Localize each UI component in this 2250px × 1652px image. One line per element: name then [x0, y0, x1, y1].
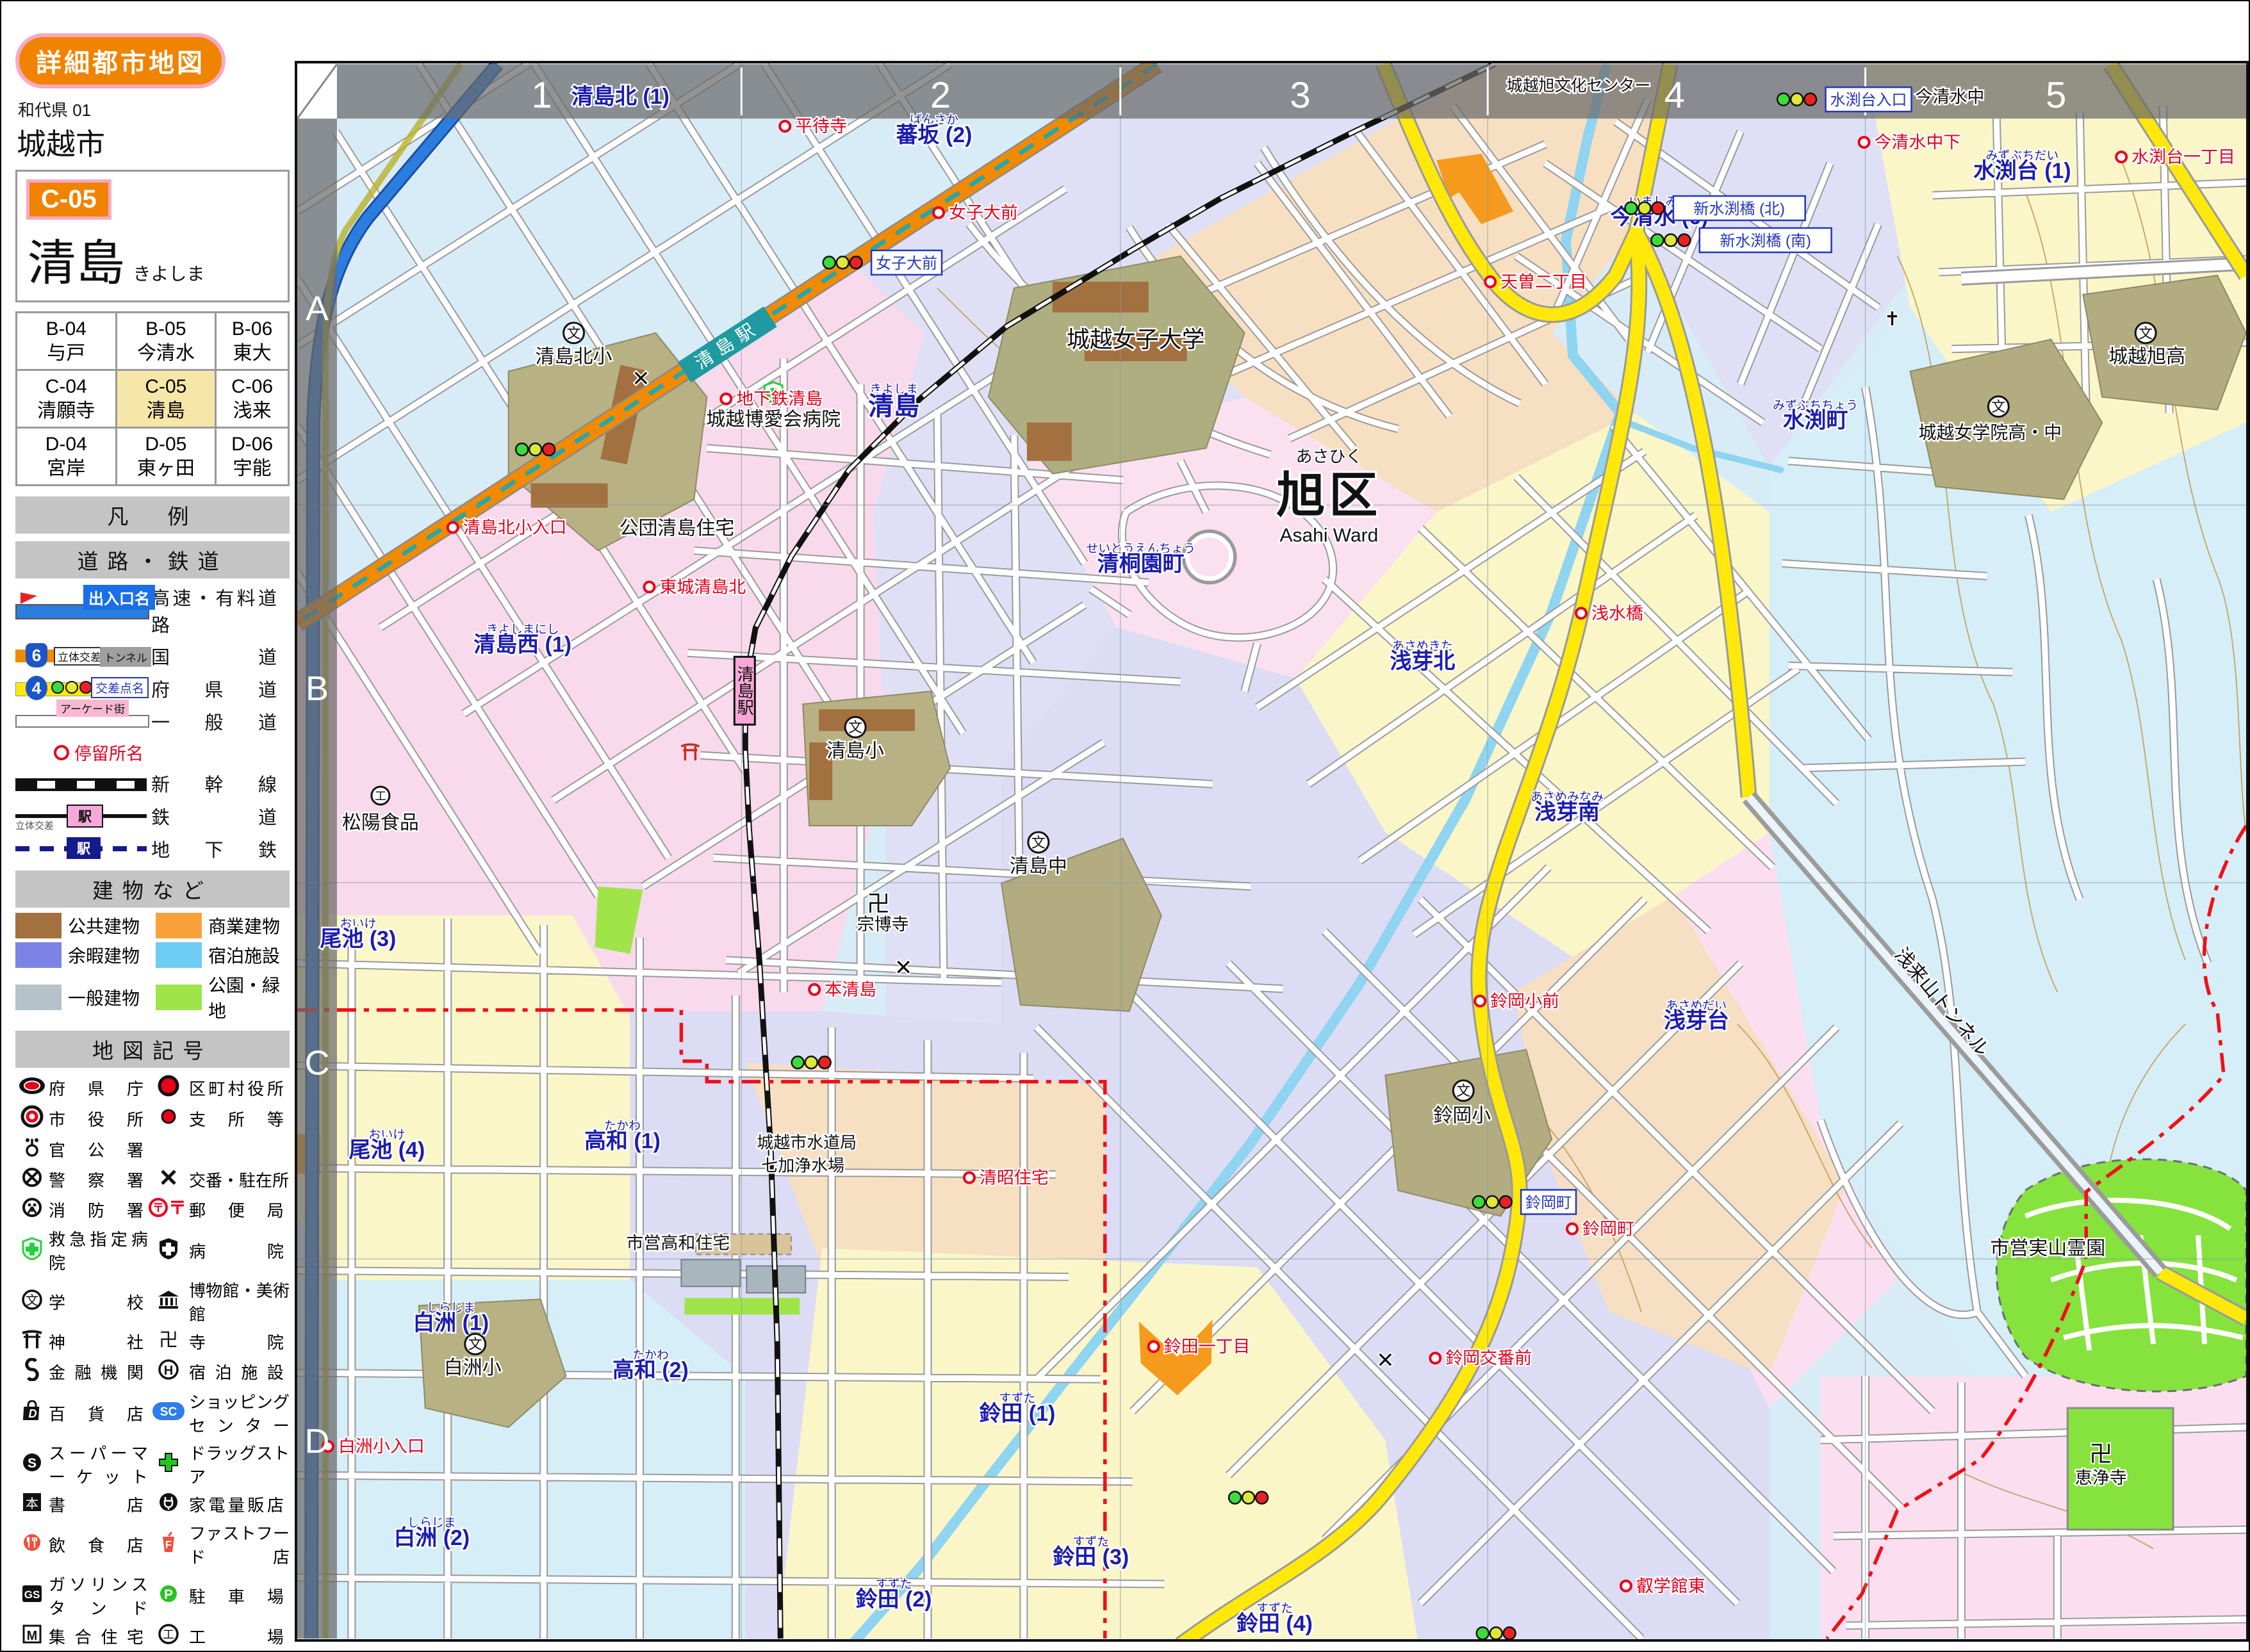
traffic-light-icon [1804, 94, 1816, 106]
symbol-label: 消防署 [49, 1198, 144, 1222]
area-label: 鈴田 (3) [1053, 1544, 1129, 1569]
crossing-name-label: 水渕台入口 [1830, 92, 1907, 109]
row-ref: A [306, 290, 329, 328]
row-ref: C [304, 1044, 329, 1083]
area-label: 水渕台 (1) [1973, 159, 2071, 183]
ordinary-road-label: 一般道 [151, 708, 277, 735]
subway-sample: 駅 [15, 835, 151, 863]
area-label: 白洲 (2) [393, 1526, 470, 1550]
ward-label-en: Asahi Ward [1280, 525, 1379, 546]
traffic-light-icon [1473, 1196, 1485, 1208]
宿泊施設-icon: H [148, 1356, 189, 1387]
sheet-code-badge: C-05 [26, 179, 111, 220]
area-label: 白洲 (1) [413, 1311, 489, 1335]
prefecture-label: 和代県 01 [18, 97, 290, 121]
svg-text:〒: 〒 [152, 1202, 164, 1214]
tile-B-04[interactable]: B-04与戸 [17, 313, 117, 370]
map-series-badge: 詳細都市地図 [15, 33, 226, 88]
traffic-light-icon [1490, 1627, 1502, 1639]
church-icon: ✝ [1884, 309, 1900, 330]
area-label: 浅芽北 [1390, 649, 1455, 673]
府県庁-icon [15, 1073, 49, 1103]
building-legend-grid: 公共建物 商業建物 余暇建物 宿泊施設 一般建物 公園・緑地 [15, 913, 290, 1023]
rail-label: 鉄道 [151, 803, 277, 830]
消防署-icon [15, 1195, 49, 1225]
bus-stop-icon [933, 208, 944, 218]
ward-label: 旭区 [1277, 469, 1382, 523]
subway-label: 地下鉄 [151, 835, 277, 862]
官公署-icon [15, 1134, 49, 1165]
家電量販店-icon [148, 1490, 189, 1519]
area-label: 尾池 (3) [320, 927, 396, 951]
symbol-label: 寺院 [189, 1330, 284, 1353]
金融機関-icon [15, 1356, 49, 1387]
博物館・美術館-icon [148, 1276, 189, 1327]
traffic-light-icon [1477, 1627, 1489, 1639]
legend-buildings-title: 建物など [15, 871, 290, 908]
map-symbol-legend: 府県庁区町村役所市役所支所等官公署警察署交番・駐在所消防署〒〒郵便局救急指定病院… [15, 1073, 290, 1651]
traffic-light-icon [1664, 234, 1677, 246]
place-label: 城越旭高 [2108, 347, 2185, 368]
ward-furigana: あさひく [1295, 447, 1362, 466]
svg-text:文: 文 [468, 1336, 482, 1352]
adjacent-sheet-grid: B-04与戸 B-05今清水 B-06東大 C-04清願寺 C-05清島 C-0… [15, 311, 290, 486]
symbol-label: 神社 [49, 1330, 144, 1353]
svg-text:D: D [29, 1407, 37, 1420]
svg-text:文: 文 [848, 719, 862, 735]
symbol-label: 救急指定病院 [49, 1227, 148, 1274]
area-label: 尾池 (4) [349, 1138, 425, 1163]
subway-station-box: 駅 [67, 837, 101, 859]
sidebar: 詳細都市地図 和代県 01 城越市 C-05 清島 きよしま B-04与戸 B-… [15, 33, 290, 1652]
koban-icon: ✕ [1376, 1348, 1394, 1373]
bus-stop-icon [809, 985, 819, 995]
救急指定病院-icon [15, 1225, 49, 1276]
shinkansen-sample [15, 769, 151, 797]
svg-text:S: S [28, 1456, 37, 1471]
神社-icon [15, 1327, 49, 1356]
svg-text:文: 文 [1991, 399, 2005, 415]
area-label: 蕃坂 (2) [896, 123, 973, 147]
svg-text:M: M [27, 1629, 38, 1643]
place-label: 城越市水道局 [757, 1133, 857, 1152]
crossing-name-label: 新水渕橋 (北) [1694, 200, 1785, 218]
expressway-label: 高速・有料道路 [151, 584, 277, 637]
bus-stop-label: 鈴岡交番前 [1445, 1348, 1532, 1368]
area-label: 浅芽南 [1534, 800, 1600, 824]
column-ref: 5 [2046, 75, 2066, 116]
building-leisure: 余暇建物 [15, 942, 149, 968]
crossing-name-box: 交差点名 [91, 677, 149, 698]
svg-text:SC: SC [160, 1405, 177, 1419]
svg-text:F: F [165, 1539, 172, 1551]
tile-B-06[interactable]: B-06東大 [216, 313, 289, 370]
bus-stop-label: 浅水橋 [1591, 603, 1643, 623]
bus-stop-icon [1485, 277, 1495, 287]
row-ref: B [306, 669, 329, 708]
place-label: 城越女子大学 [1067, 326, 1205, 352]
traffic-light-icon [1500, 1196, 1512, 1208]
traffic-light-icon [51, 681, 92, 694]
svg-text:文: 文 [2139, 325, 2153, 341]
bus-stop-icon [1430, 1353, 1440, 1363]
route-shield-icon: 6 [26, 643, 47, 667]
entry-arrow-icon [21, 590, 37, 604]
area-label: 清島西 (1) [473, 632, 571, 657]
svg-text:文: 文 [1031, 835, 1046, 851]
区町村役所-icon [148, 1073, 189, 1103]
area-label: 鈴田 (4) [1236, 1611, 1313, 1636]
symbol-label: 警察署 [49, 1168, 144, 1191]
column-ref: 2 [930, 75, 951, 116]
national-road-sample: 6 立体交差 トンネル [15, 642, 151, 670]
bus-stop-label: 鈴岡町 [1582, 1219, 1634, 1238]
traffic-light-icon [1777, 94, 1789, 106]
tile-D-05[interactable]: D-05東ヶ田 [116, 428, 216, 486]
rail-station-name: 清島駅 [735, 666, 754, 716]
svg-text:〒: 〒 [168, 1198, 186, 1218]
bus-stop-label: 本清島 [825, 980, 876, 999]
bus-stop-icon [1621, 1581, 1631, 1591]
traffic-light-icon [1638, 202, 1650, 214]
svg-text:H: H [164, 1364, 173, 1378]
land-use-zones [297, 64, 2246, 1639]
tile-C-05-current[interactable]: C-05清島 [116, 370, 216, 428]
交番・駐在所-icon [148, 1165, 189, 1195]
symbol-label: 市役所 [49, 1107, 144, 1131]
traffic-light-icon [805, 1056, 817, 1068]
symbol-label: 家電量販店 [189, 1493, 284, 1516]
shinkansen-label: 新幹線 [151, 770, 277, 797]
public-building-swatch [15, 913, 62, 938]
symbol-label: 百貨店 [49, 1402, 144, 1425]
area-label: 高和 (1) [584, 1129, 661, 1154]
symbol-label: 博物館・美術館 [189, 1278, 290, 1325]
legend-shinkansen-row: 新幹線 [15, 769, 290, 797]
legend-title: 凡 例 [15, 496, 290, 534]
pref-route-shield-icon: 4 [26, 676, 47, 700]
city-label: 城越市 [17, 121, 290, 163]
building-general: 一般建物 [15, 972, 149, 1023]
bus-stop-label: 東城清島北 [659, 577, 746, 596]
svg-text:文: 文 [567, 325, 581, 341]
place-label: 恵浄寺 [2075, 1468, 2127, 1487]
prefectural-road-label: 府県道 [151, 675, 277, 702]
symbol-label: 学校 [49, 1290, 144, 1314]
place-label: 清島北小 [536, 347, 612, 368]
traffic-light-icon [837, 256, 849, 268]
place-label: 城越博愛会病院 [706, 409, 841, 430]
temple-icon: 卍 [2089, 1441, 2112, 1467]
place-label: 鈴岡小 [1433, 1106, 1491, 1127]
expressway-sample: 出入口名 [15, 596, 151, 625]
traffic-light-icon [792, 1056, 804, 1068]
bus-stop-icon [780, 121, 790, 131]
警察署-icon [15, 1165, 49, 1195]
スーパーマーケット-icon: S [15, 1439, 49, 1490]
symbol-label: 駐車場 [189, 1584, 284, 1608]
traffic-light-icon [1652, 202, 1664, 214]
symbol-label: 官公署 [49, 1138, 144, 1161]
百貨店-icon: D [15, 1387, 49, 1439]
traffic-light-icon [1791, 94, 1803, 106]
area-label: 鈴田 (1) [979, 1401, 1055, 1426]
bus-stop-label: 清昭住宅 [980, 1168, 1049, 1187]
crossing-name-label: 新水渕橋 (南) [1720, 233, 1811, 250]
area-label: 浅芽台 [1664, 1009, 1729, 1033]
sheet-title-box: C-05 清島 きよしま [15, 170, 290, 302]
area-label: 高和 (2) [612, 1358, 689, 1382]
traffic-light-icon [1242, 1492, 1254, 1504]
legend-expressway-row: 出入口名 高速・有料道路 [15, 584, 290, 637]
traffic-light-icon [543, 443, 555, 455]
bus-stop-icon [1149, 1341, 1159, 1352]
crossing-name-label: 女子大前 [876, 255, 937, 272]
svg-text:GS: GS [24, 1589, 40, 1601]
place-label: 宗博寺 [857, 915, 909, 934]
bus-stop-label: 今清水中下 [1875, 133, 1961, 152]
area-label: 鈴田 (2) [856, 1587, 932, 1612]
place-label: 市営高和住宅 [627, 1233, 730, 1252]
symbol-label: 工場 [189, 1624, 284, 1648]
crossing-name-label: 鈴岡町 [1525, 1194, 1572, 1211]
traffic-light-icon [1486, 1196, 1499, 1208]
symbol-label: ガソリンスタンド [49, 1572, 148, 1619]
city-map-canvas[interactable]: 清島北 (1)ばんさか蕃坂 (2)いましみず今清水 (6)みずぶちだい水渕台 (… [297, 63, 2246, 1639]
detailed-city-map-page: 詳細都市地図 和代県 01 城越市 C-05 清島 きよしま B-04与戸 B-… [0, 0, 2250, 1652]
ガソリンスタンド-icon: GS [15, 1570, 49, 1621]
bus-stop-icon [721, 394, 731, 404]
map-area[interactable]: 清島北 (1)ばんさか蕃坂 (2)いましみず今清水 (6)みずぶちだい水渕台 (… [295, 61, 2249, 1642]
symbol-label: ドラッグストア [189, 1441, 290, 1488]
symbol-label: 支所等 [189, 1107, 284, 1131]
bus-stop-label: 叡学館東 [1636, 1576, 1705, 1596]
traffic-light-icon [823, 256, 835, 268]
集合住宅-icon: M [15, 1621, 49, 1651]
symbol-label: ファストフード店 [189, 1521, 290, 1568]
svg-text:卍: 卍 [159, 1330, 178, 1350]
place-label: 清島小 [826, 740, 884, 762]
svg-text:工: 工 [375, 790, 386, 803]
place-label: 市営実山霊園 [1990, 1238, 2105, 1259]
bus-stop-label: 鈴田一丁目 [1164, 1337, 1251, 1356]
building-park: 公園・緑地 [156, 972, 290, 1023]
national-road-label: 国道 [151, 642, 277, 669]
symbol-label: 集合住宅 [49, 1624, 144, 1648]
temple-icon: 卍 [867, 890, 890, 917]
bus-stop-icon [1859, 137, 1869, 147]
building-public: 公共建物 [15, 913, 149, 938]
symbol-label: 区町村役所 [189, 1076, 284, 1100]
bus-stop-icon [448, 523, 458, 533]
工場-icon: 工 [148, 1621, 189, 1651]
rail-station-box: 駅 [67, 805, 103, 828]
legend-symbols-title: 地図記号 [15, 1031, 290, 1068]
building-commercial: 商業建物 [156, 913, 290, 938]
ordinary-road-sample: アーケード街 [15, 707, 151, 735]
郵便局-icon: 〒〒 [148, 1195, 189, 1225]
svg-text:P: P [164, 1587, 173, 1602]
tunnel-label: トンネル [100, 647, 151, 667]
traffic-light-icon [529, 443, 541, 455]
area-label: 清島 [868, 393, 919, 421]
legend-rail-row: 駅 立体交差 鉄道 [15, 802, 290, 830]
traffic-light-icon [1678, 234, 1690, 246]
bus-stop-icon [2116, 152, 2126, 162]
bus-stop-icon [1475, 996, 1485, 1006]
rail-sample: 駅 立体交差 [15, 802, 151, 830]
symbol-label: ショッピングセンター [189, 1389, 290, 1437]
koban-icon: ✕ [632, 367, 650, 391]
place-label: 白洲小 [444, 1357, 502, 1378]
svg-text:本: 本 [26, 1496, 38, 1511]
bus-stop-label: 平待寺 [795, 117, 847, 136]
bus-stop-label: 鈴岡小前 [1490, 992, 1559, 1011]
legend-roads-title: 道路・鉄道 [15, 541, 290, 578]
ドラッグストア-icon [148, 1439, 189, 1490]
飲食店-icon [15, 1519, 49, 1570]
bus-stop-label: 水渕台一丁目 [2131, 147, 2235, 167]
symbol-label: 書店 [49, 1493, 144, 1516]
legend-prefectural-road-row: 4 交差点名 府県道 [15, 675, 290, 703]
寺院-icon: 卍 [148, 1327, 189, 1356]
prefectural-road-sample: 4 交差点名 [15, 675, 151, 703]
ショッピングセンター-icon: SC [148, 1387, 189, 1439]
bus-stop-icon [54, 745, 69, 760]
area-label: 清島北 (1) [571, 85, 669, 109]
place-label: 松陽食品 [342, 812, 419, 833]
bus-stop-icon [1567, 1223, 1577, 1234]
area-label: 水渕町 [1783, 409, 1848, 433]
arcade-badge: アーケード街 [56, 699, 129, 717]
tile-D-04[interactable]: D-04宮岸 [17, 428, 117, 486]
traffic-light-icon [1256, 1492, 1268, 1504]
hotel-swatch [156, 942, 202, 968]
area-label: 清桐園町 [1097, 552, 1185, 576]
tile-B-05[interactable]: B-05今清水 [116, 313, 216, 370]
ファストフード店-icon: F [148, 1519, 189, 1570]
rail-grade-label: 立体交差 [15, 819, 54, 832]
legend-subway-row: 駅 地下鉄 [15, 835, 290, 863]
column-ref: 3 [1290, 75, 1310, 116]
symbol-label: 金融機関 [49, 1360, 144, 1384]
bus-stop-label: 白洲小入口 [338, 1437, 425, 1456]
traffic-light-icon [516, 443, 528, 455]
traffic-light-icon [1625, 202, 1637, 214]
svg-text:文: 文 [1456, 1083, 1470, 1099]
column-ref: 1 [532, 75, 552, 116]
place-label: 城越女学院高・中 [1919, 423, 2062, 443]
bus-stop-icon [644, 582, 654, 592]
place-label: 公団清島住宅 [620, 518, 735, 539]
column-ref: 4 [1664, 75, 1685, 116]
traffic-light-icon [850, 256, 862, 268]
cemetery-grounds [1996, 1159, 2246, 1391]
sheet-name: 清島 [28, 224, 125, 294]
支所等-icon [148, 1103, 189, 1134]
symbol-label: 宿泊施設 [189, 1360, 284, 1384]
市役所-icon [15, 1103, 49, 1134]
traffic-light-icon [1651, 234, 1663, 246]
symbol-label: 病院 [189, 1239, 284, 1263]
tile-D-06[interactable]: D-06宇能 [216, 428, 289, 486]
書店-icon: 本 [15, 1490, 49, 1519]
building-hotel: 宿泊施設 [156, 942, 290, 968]
駐車場-icon: P [148, 1570, 189, 1621]
leisure-building-swatch [15, 942, 62, 968]
symbol-label: 府県庁 [49, 1076, 144, 1100]
bus-stop-label: 天曽二丁目 [1500, 272, 1587, 291]
traffic-light-icon [819, 1056, 831, 1068]
grade-separation-label: 立体交差 [54, 647, 105, 666]
symbol-label: 飲食店 [49, 1533, 144, 1557]
bus-stop-legend: 停留所名 [54, 740, 290, 765]
place-label: 今清水中 [1916, 87, 1985, 106]
svg-text:文: 文 [26, 1293, 38, 1308]
bus-stop-label: 地下鉄清島 [736, 389, 823, 409]
traffic-light-icon [1504, 1627, 1516, 1639]
tile-C-04[interactable]: C-04清願寺 [17, 370, 117, 428]
病院-icon [148, 1225, 189, 1276]
legend-ordinary-road-row: アーケード街 一般道 [15, 707, 290, 735]
symbol-label: 郵便局 [189, 1198, 284, 1222]
general-building-swatch [15, 985, 62, 1010]
svg-text:工: 工 [163, 1628, 174, 1641]
bus-stop-icon [964, 1173, 974, 1183]
row-ref: D [304, 1422, 329, 1460]
学校-icon: 文 [15, 1276, 49, 1327]
legend-national-road-row: 6 立体交差 トンネル 国道 [15, 642, 290, 670]
place-label: 七加浄水場 [761, 1156, 844, 1175]
tile-C-06[interactable]: C-06浅来 [216, 370, 289, 428]
koban-icon: ✕ [894, 956, 912, 980]
sheet-name-kana: きよしま [133, 264, 204, 284]
commercial-building-swatch [156, 913, 202, 938]
park-swatch [156, 985, 202, 1010]
symbol-label: 交番・駐在所 [189, 1168, 289, 1191]
bus-stop-label: 女子大前 [949, 203, 1018, 222]
traffic-light-icon [1229, 1492, 1241, 1504]
ramp-name-badge: 出入口名 [83, 585, 155, 610]
place-label: 清島中 [1010, 856, 1067, 877]
symbol-label: スーパーマーケット [49, 1441, 148, 1488]
place-label: 城越旭文化センター [1507, 77, 1651, 95]
bus-stop-icon [1576, 608, 1586, 618]
bus-stop-label: 清島北小入口 [463, 518, 567, 537]
